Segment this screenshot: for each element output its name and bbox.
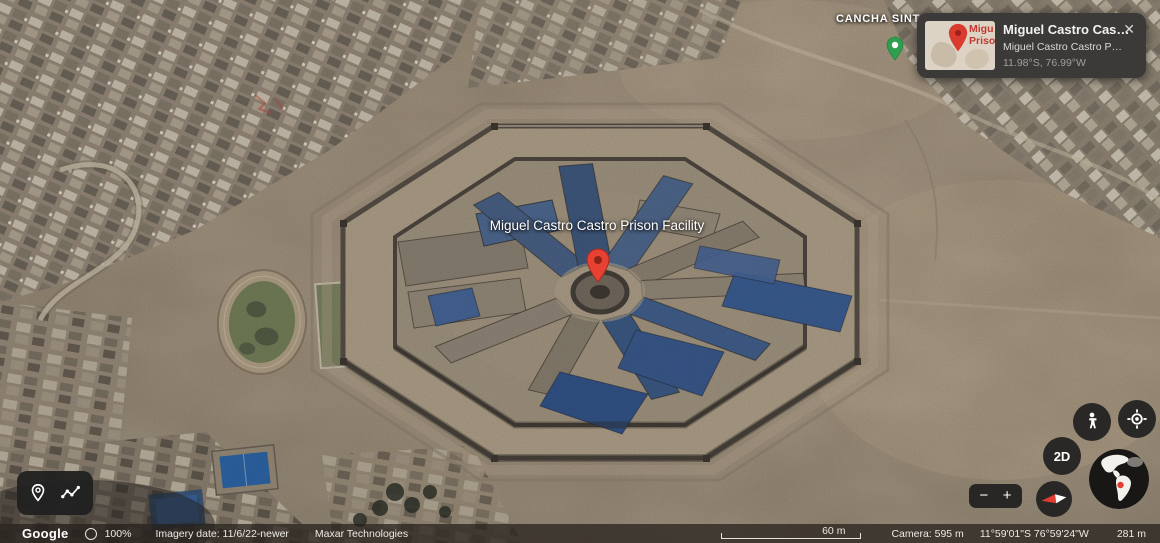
stream-percent: 100% [105,528,132,540]
info-card-subtitle: Miguel Castro Castro P… [1003,41,1129,53]
info-card-text: Miguel Castro Cas… Miguel Castro Castro … [1003,13,1129,78]
camera-altitude: Camera: 595 m [891,528,963,540]
target-icon [1126,408,1148,430]
measure-path-button[interactable] [59,482,83,504]
thumbnail-label: Migu Priso [969,23,995,47]
globe-button[interactable] [1089,449,1149,509]
info-card-thumbnail[interactable]: Migu Priso [925,21,995,70]
pointer-coordinates: 11°59'01"S 76°59'24"W [980,528,1089,540]
compass-button[interactable] [1036,481,1072,517]
prison-place-label[interactable]: Miguel Castro Castro Prison Facility [490,218,705,233]
google-earth-app: CANCHA SINT Miguel Castro Castro Prison … [0,0,1160,543]
cancha-pin[interactable] [886,36,904,62]
provider-credit: Maxar Technologies [315,528,408,540]
info-card-coordinates: 11.98°S, 76.99°W [1003,57,1129,69]
scale-line [721,533,861,539]
status-bar-right: 60 m Camera: 595 m 11°59'01"S 76°59'24"W… [721,525,1146,542]
compass-needle-icon [1039,484,1069,514]
my-location-button[interactable] [1118,400,1156,438]
zoom-control: − + [969,484,1022,508]
imagery-date: Imagery date: 11/6/22-newer [155,528,288,540]
close-button[interactable]: ✕ [1123,22,1135,36]
google-logo: Google [22,526,69,541]
info-card: Migu Priso Miguel Castro Cas… Miguel Cas… [917,13,1146,78]
pegman-button[interactable] [1073,403,1111,441]
thumbnail-pin-icon [947,23,969,53]
prison-pin[interactable] [585,248,611,284]
zoom-out-button[interactable]: − [975,484,992,508]
pegman-icon [1082,411,1102,433]
map-toolbox [17,471,93,515]
map-canvas[interactable] [0,0,1160,543]
cancha-place-label[interactable]: CANCHA SINT [836,13,920,25]
zoom-in-button[interactable]: + [999,484,1016,508]
scale-bar: 60 m [721,525,861,542]
status-bar: Google 100% Imagery date: 11/6/22-newer … [0,524,1160,543]
view-2d-button[interactable]: 2D [1043,437,1081,475]
pointer-elevation: 281 m [1117,528,1146,540]
globe-icon [1089,449,1149,509]
add-pin-button[interactable] [27,482,49,504]
data-ring-icon [85,528,97,540]
info-card-title: Miguel Castro Cas… [1003,22,1129,37]
